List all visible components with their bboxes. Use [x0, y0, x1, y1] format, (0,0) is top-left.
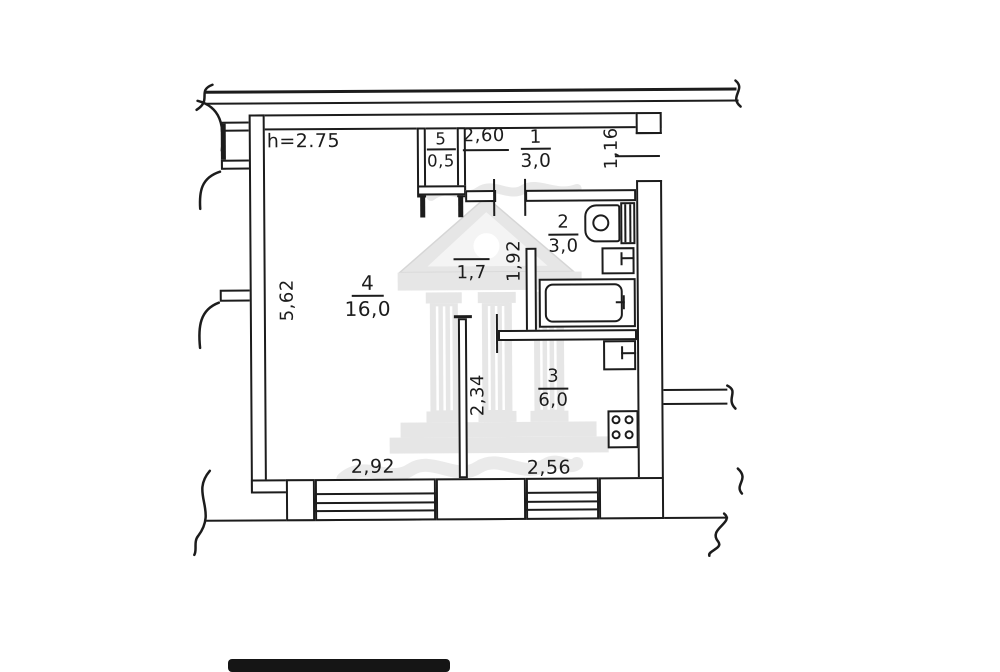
kitchen-width-dim: 2,56 [527, 457, 571, 479]
neighbor-door-arc-middle [200, 172, 220, 209]
neighbor-door-arc-lower [199, 303, 219, 348]
living-room-area: 16,0 [344, 297, 391, 320]
bathroom-room-label: 2 3,0 [535, 213, 591, 256]
hallway-door-tick-right [524, 179, 526, 216]
kitchen-door-tick [496, 314, 498, 353]
kitchen-window [526, 477, 599, 519]
corridor-depth-dim: 1,92 [502, 226, 524, 296]
bathroom-room-area: 3,0 [548, 235, 578, 256]
toilet-icon [0, 0, 998, 3]
hallway-door-tick-left [493, 179, 495, 216]
neighbor-wall-stub-top-line [663, 389, 727, 391]
closet-room-number: 5 [426, 130, 455, 150]
building-top-wall-outer-line [205, 88, 736, 94]
break-bottom-left [194, 471, 211, 555]
corridor-area-value: 1,7 [456, 262, 486, 283]
wall-left [249, 114, 267, 493]
hallway-width-dim: 2,60 [463, 125, 505, 146]
kitchen-wall-top [498, 329, 637, 341]
stove-icon [0, 0, 998, 3]
neighbor-wall-stub-bottom-line [663, 403, 727, 405]
bathroom-wall-left [525, 248, 537, 332]
building-top-wall-inner-line [206, 100, 739, 105]
living-room-label: 4 16,0 [332, 273, 404, 320]
bathtub-icon [0, 0, 998, 3]
wall-right-main [636, 180, 664, 491]
closet-stub-left [420, 195, 425, 217]
neighbor-niche-bottom-wall [221, 160, 251, 170]
bottom-pier-middle [436, 478, 526, 521]
hallway-room-label: 1 3,0 [505, 128, 567, 172]
hallway-bottom-wall-left [465, 190, 496, 202]
floor-plan-scan: h=2.75 5 0,5 2,60 1 3,0 1,16 2 3,0 1,7 1… [0, 0, 1000, 672]
bottom-pier-right [599, 477, 664, 519]
neighbor-wall-stub-left [220, 290, 252, 302]
entry-wall-dim: 1,16 [600, 113, 622, 183]
corridor-area-label: 1,7 [446, 258, 498, 283]
break-bottom-right-line [709, 514, 727, 556]
bottom-pier-left [286, 479, 315, 521]
living-height-dim: 5,62 [276, 265, 298, 335]
break-right-stub [727, 386, 735, 409]
redaction-bar [228, 659, 450, 672]
living-window [315, 478, 436, 521]
closet-room-label: 5 0,5 [418, 130, 464, 170]
living-room-number: 4 [352, 273, 383, 297]
kitchen-room-label: 3 6,0 [522, 367, 584, 410]
bathroom-sink-icon [0, 0, 998, 3]
wall-right-above-entry [636, 112, 662, 134]
bathroom-room-number: 2 [548, 214, 578, 236]
kitchen-room-number: 3 [538, 368, 568, 390]
break-bottom-right-band [738, 469, 743, 494]
hallway-width-dim-line [463, 149, 509, 151]
ceiling-height-label: h=2.75 [267, 130, 340, 152]
hallway-room-number: 1 [521, 128, 551, 151]
entry-door-jamb-top [636, 132, 662, 134]
break-top-right [735, 81, 740, 107]
closet-stub-right [458, 195, 463, 217]
apartment-floor-plan: h=2.75 5 0,5 2,60 1 3,0 1,16 2 3,0 1,7 1… [0, 0, 1000, 672]
neighbor-door-arc-top [198, 101, 223, 151]
kitchen-room-area: 6,0 [538, 389, 568, 410]
kitchen-sink-icon [0, 0, 998, 3]
closet-wall-bottom [417, 185, 466, 195]
break-top-left [196, 85, 212, 110]
corridor-label-bar [454, 258, 490, 260]
closet-room-area: 0,5 [427, 151, 455, 170]
hallway-bottom-wall-right [525, 189, 636, 202]
kitchen-depth-dim: 2,34 [466, 360, 488, 430]
living-width-dim: 2,92 [351, 456, 395, 478]
hallway-room-area: 3,0 [520, 150, 551, 172]
